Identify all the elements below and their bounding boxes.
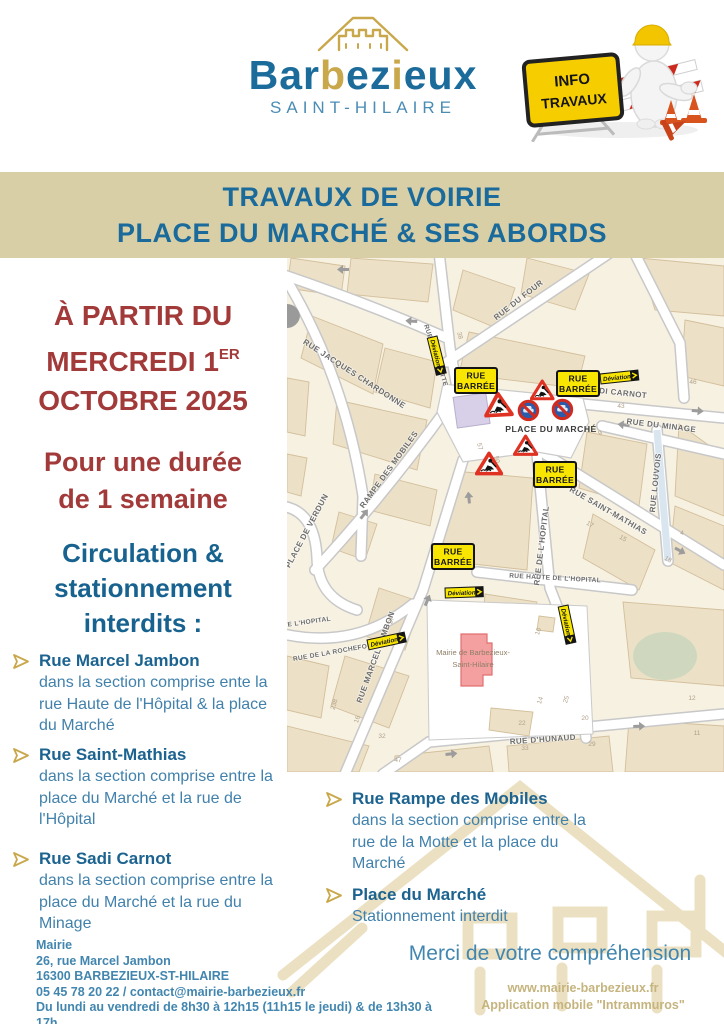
restrictions-heading: Circulation & stationnement interdits :	[10, 536, 276, 641]
svg-text:PLACE DU MARCHÉ: PLACE DU MARCHÉ	[505, 424, 597, 434]
restriction-detail: dans la section comprise ente la rue Hau…	[39, 672, 284, 737]
website-info: www.mairie-barbezieux.fr Application mob…	[468, 980, 698, 1014]
date-superscript: ER	[219, 346, 240, 363]
roadworks-map: RUE DU FOUR RUE JACQUES CHARDONNE RUE DE…	[287, 258, 724, 772]
brand-part: ez	[346, 52, 391, 98]
green-area	[633, 632, 697, 680]
svg-text:46: 46	[689, 379, 697, 386]
svg-text:20: 20	[581, 715, 589, 722]
restriction-item: Rue Marcel Jambon dans la section compri…	[12, 650, 284, 737]
svg-text:RUE: RUE	[568, 374, 587, 384]
brand-part: Bar	[249, 52, 320, 98]
restriction-street: Rue Marcel Jambon	[39, 650, 284, 672]
restriction-street: Place du Marché	[352, 884, 508, 906]
date-line2: MERCREDI 1ER	[10, 335, 276, 381]
restriction-item: Rue Sadi Carnot dans la section comprise…	[12, 848, 284, 935]
restriction-detail: dans la section comprise entre la place …	[39, 766, 284, 831]
date-line1: À PARTIR DU	[10, 296, 276, 335]
lavender-building	[453, 393, 490, 428]
brand-subtitle: SAINT-HILAIRE	[238, 98, 488, 118]
restriction-item: Rue Saint-Mathias dans la section compri…	[12, 744, 284, 831]
mobile-app: Application mobile "Intrammuros"	[468, 997, 698, 1014]
svg-text:22: 22	[518, 720, 526, 727]
thanks-message: Merci de votre compréhension	[400, 942, 700, 966]
svg-text:BARRÉE: BARRÉE	[536, 475, 574, 485]
arrow-bullet-icon	[12, 851, 30, 868]
banner-line1: TRAVAUX DE VOIRIE	[0, 179, 724, 215]
arrow-bullet-icon	[12, 747, 30, 764]
svg-text:RUE: RUE	[443, 547, 462, 557]
header: Barbezieux SAINT-HILAIRE	[0, 0, 724, 170]
contact-line: 05 45 78 20 22 / contact@mairie-barbezie…	[36, 985, 436, 1001]
contact-line: 16300 BARBEZIEUX-ST-HILAIRE	[36, 969, 436, 985]
svg-text:11: 11	[694, 730, 701, 737]
brand-name: Barbezieux	[238, 54, 488, 96]
website-url: www.mairie-barbezieux.fr	[468, 980, 698, 997]
restriction-detail: Stationnement interdit	[352, 906, 508, 928]
svg-text:47: 47	[394, 757, 402, 764]
svg-text:Mairie de Barbezieux-: Mairie de Barbezieux-	[436, 648, 510, 657]
svg-text:43: 43	[617, 403, 625, 410]
svg-text:4: 4	[680, 530, 684, 537]
restriction-item: Place du Marché Stationnement interdit	[325, 884, 605, 928]
arrow-bullet-icon	[325, 887, 343, 904]
info-sign-line1: INFO	[554, 70, 592, 90]
start-date: À PARTIR DU MERCREDI 1ER OCTOBRE 2025	[10, 296, 276, 420]
svg-text:Déviation: Déviation	[448, 589, 476, 597]
svg-text:32: 32	[378, 733, 386, 740]
restriction-detail: dans la section comprise entre la place …	[39, 870, 284, 935]
info-travaux-illustration: INFO TRAVAUX	[518, 10, 710, 142]
contact-line: Mairie	[36, 938, 436, 954]
svg-text:BARRÉE: BARRÉE	[457, 381, 495, 391]
brand-part: eux	[404, 52, 478, 98]
svg-text:RUE: RUE	[545, 465, 564, 475]
brand-part-gold: i	[391, 52, 403, 98]
banner-line2: PLACE DU MARCHÉ & SES ABORDS	[0, 215, 724, 251]
duration: Pour une durée de 1 semaine	[10, 444, 276, 518]
contact-line: Du lundi au vendredi de 8h30 à 12h15 (11…	[36, 1000, 436, 1024]
svg-text:33: 33	[521, 745, 529, 752]
town-logo: Barbezieux SAINT-HILAIRE	[238, 8, 488, 118]
svg-text:29: 29	[588, 741, 596, 748]
restriction-street: Rue Rampe des Mobiles	[352, 788, 605, 810]
arrow-bullet-icon	[325, 791, 343, 808]
svg-text:RUE: RUE	[466, 371, 485, 381]
restriction-street: Rue Sadi Carnot	[39, 848, 284, 870]
castle-icon	[313, 8, 413, 54]
svg-text:12: 12	[688, 695, 696, 702]
restriction-street: Rue Saint-Mathias	[39, 744, 284, 766]
title-banner: TRAVAUX DE VOIRIE PLACE DU MARCHÉ & SES …	[0, 172, 724, 258]
svg-text:Saint-Hilaire: Saint-Hilaire	[452, 660, 493, 669]
svg-text:BARRÉE: BARRÉE	[434, 557, 472, 567]
arrow-bullet-icon	[12, 653, 30, 670]
restriction-item: Rue Rampe des Mobiles dans la section co…	[325, 788, 605, 875]
flyer-page: Barbezieux SAINT-HILAIRE	[0, 0, 724, 1024]
left-column: À PARTIR DU MERCREDI 1ER OCTOBRE 2025 Po…	[0, 258, 287, 938]
mairie-contact: Mairie 26, rue Marcel Jambon 16300 BARBE…	[36, 938, 436, 1024]
contact-line: 26, rue Marcel Jambon	[36, 954, 436, 970]
svg-text:BARRÉE: BARRÉE	[559, 384, 597, 394]
restriction-detail: dans la section comprise entre la rue de…	[352, 810, 605, 875]
date-line3: OCTOBRE 2025	[10, 381, 276, 420]
brand-part-gold: b	[320, 52, 346, 98]
